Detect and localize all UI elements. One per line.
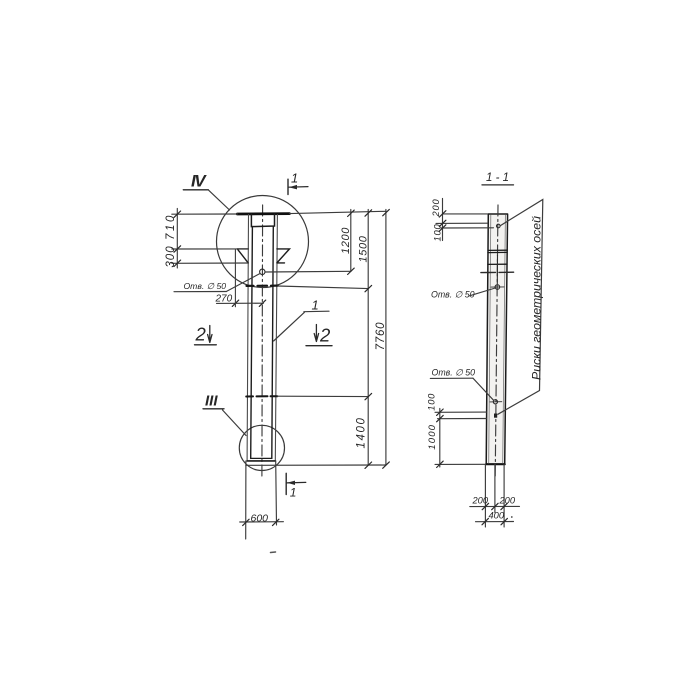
svg-text:Отв. ∅ 50: Отв. ∅ 50	[184, 281, 227, 291]
svg-text:2: 2	[195, 324, 207, 345]
svg-text:Отв. ∅ 50: Отв. ∅ 50	[431, 290, 475, 300]
svg-text:III: III	[205, 393, 218, 410]
svg-text:1500: 1500	[357, 235, 369, 262]
svg-text:200: 200	[499, 496, 516, 506]
svg-text:IV: IV	[191, 172, 207, 191]
svg-text:Риски геометрических осей: Риски геометрических осей	[530, 216, 544, 380]
svg-text:1: 1	[291, 171, 298, 186]
svg-text:1200: 1200	[340, 227, 352, 254]
svg-text:2: 2	[319, 325, 331, 346]
svg-text:100: 100	[427, 393, 437, 411]
svg-text:710: 710	[165, 213, 177, 240]
svg-text:1400: 1400	[355, 417, 367, 449]
svg-text:1000: 1000	[427, 424, 438, 450]
svg-text:300: 300	[165, 245, 177, 267]
svg-text:1: 1	[312, 298, 319, 313]
svg-text:200: 200	[472, 496, 489, 506]
svg-text:200: 200	[431, 199, 441, 218]
svg-text:100: 100	[432, 224, 442, 242]
svg-text:7760: 7760	[375, 322, 387, 351]
svg-text:Отв. ∅ 50: Отв. ∅ 50	[432, 368, 476, 378]
svg-text:400: 400	[489, 511, 505, 521]
svg-text:1 - 1: 1 - 1	[486, 172, 509, 184]
svg-text:600: 600	[251, 513, 269, 525]
svg-text:1: 1	[290, 486, 297, 500]
